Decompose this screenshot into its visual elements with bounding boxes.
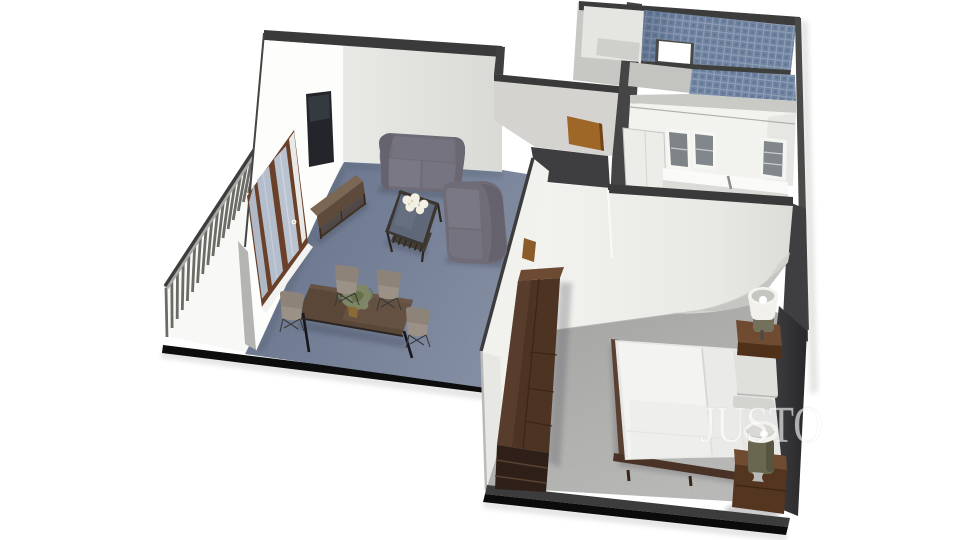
svg-text:JUSTO: JUSTO bbox=[700, 397, 823, 454]
